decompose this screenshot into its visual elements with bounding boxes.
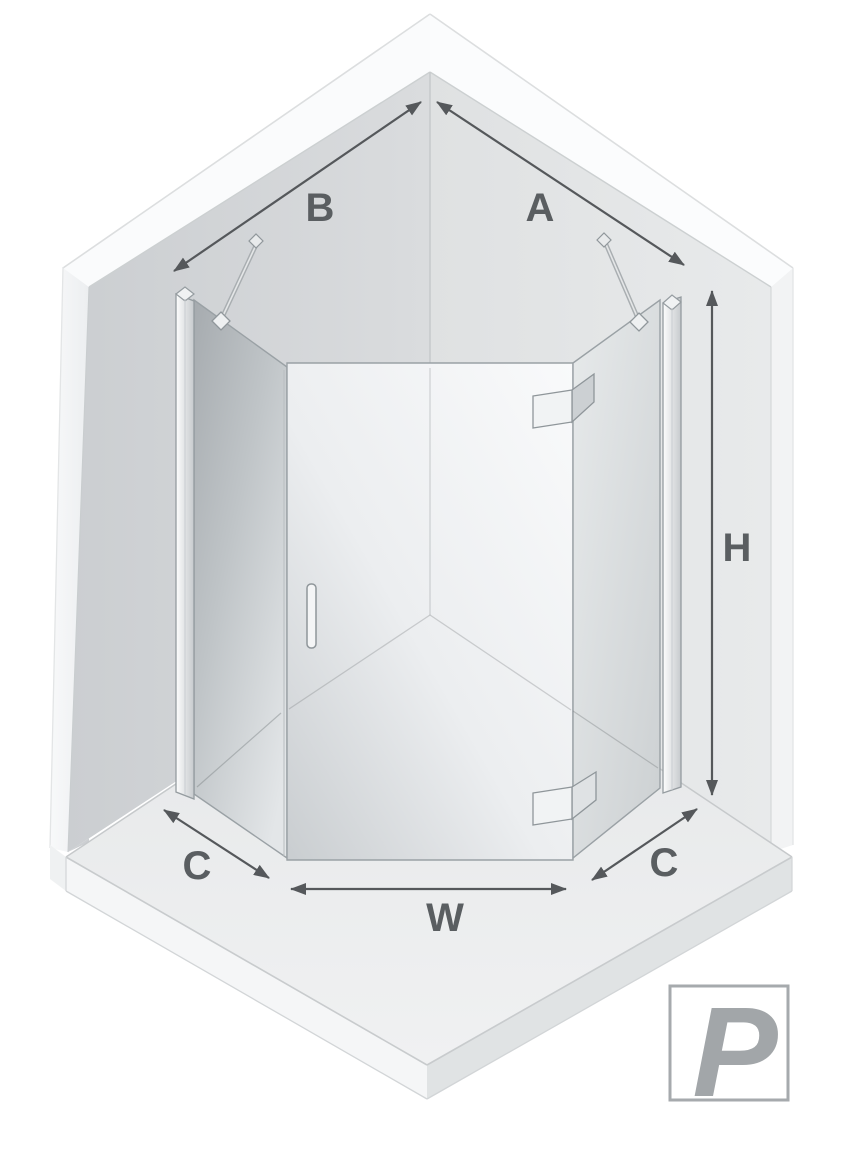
shower-enclosure-diagram: B A H C W C P — [0, 0, 850, 1173]
left-glass-panel — [194, 300, 287, 858]
hinge-bottom-front — [533, 787, 572, 825]
right-wall-end-band — [771, 268, 793, 852]
dim-label-w: W — [426, 896, 464, 940]
hinge-top-front — [533, 390, 572, 428]
door-handle — [307, 584, 316, 648]
dim-label-c-right: C — [650, 841, 679, 885]
brand-logo-letter: P — [692, 981, 778, 1124]
dim-label-a: A — [526, 186, 555, 230]
dim-label-h: H — [723, 526, 752, 570]
dim-label-c-left: C — [183, 844, 212, 888]
shower-enclosure-diagram-page: B A H C W C P — [0, 0, 850, 1173]
dim-label-b: B — [306, 186, 335, 230]
